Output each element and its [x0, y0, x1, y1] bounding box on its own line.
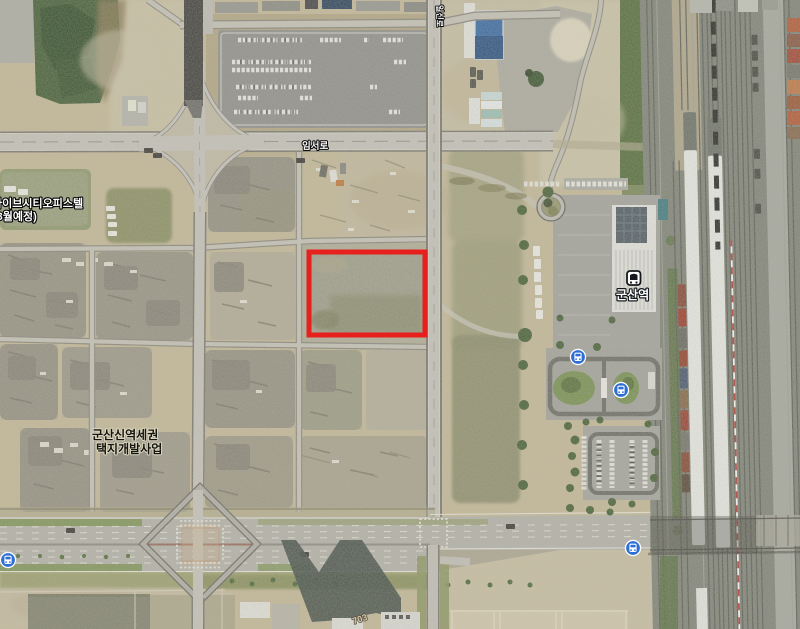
svg-text:(3월예정): (3월예정) [0, 209, 37, 223]
svg-text:라이브시티오피스텔: 라이브시티오피스텔 [0, 196, 83, 210]
svg-text:군산신역세권: 군산신역세권 [92, 427, 158, 442]
svg-text:임서로: 임서로 [302, 140, 328, 152]
svg-text:군산역: 군산역 [616, 287, 649, 302]
svg-text:일신로: 일신로 [435, 5, 445, 28]
svg-text:택지개발사업: 택지개발사업 [96, 441, 162, 456]
